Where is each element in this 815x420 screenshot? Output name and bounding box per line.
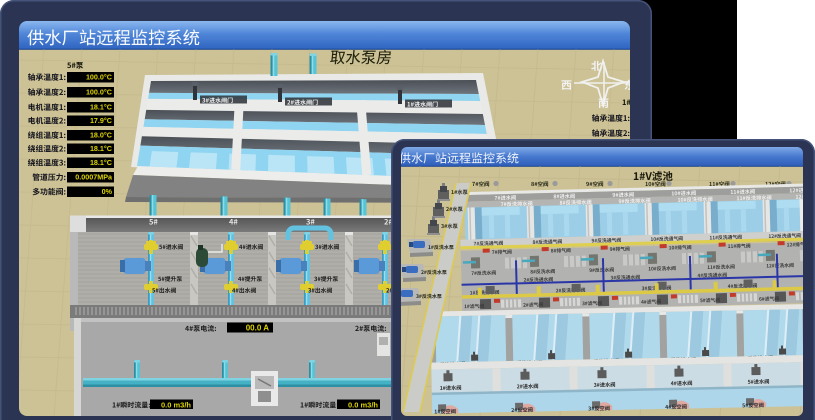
svg-text:18.1°C: 18.1°C [90,158,112,167]
svg-text:100.0°C: 100.0°C [86,88,112,97]
svg-text:0.0007MPa: 0.0007MPa [75,173,113,182]
svg-text:0.0 m3/h: 0.0 m3/h [348,401,378,410]
svg-text:0%: 0% [102,187,113,196]
svg-text:00.0 A: 00.0 A [246,324,269,333]
svg-text:18.1°C: 18.1°C [90,103,112,112]
svg-text:18.0°C: 18.0°C [90,131,112,140]
svg-text:0.0 m3/h: 0.0 m3/h [161,401,191,410]
svg-text:100.0°C: 100.0°C [86,73,112,82]
svg-text:18.1°C: 18.1°C [90,144,112,153]
svg-text:17.9°C: 17.9°C [90,116,112,125]
